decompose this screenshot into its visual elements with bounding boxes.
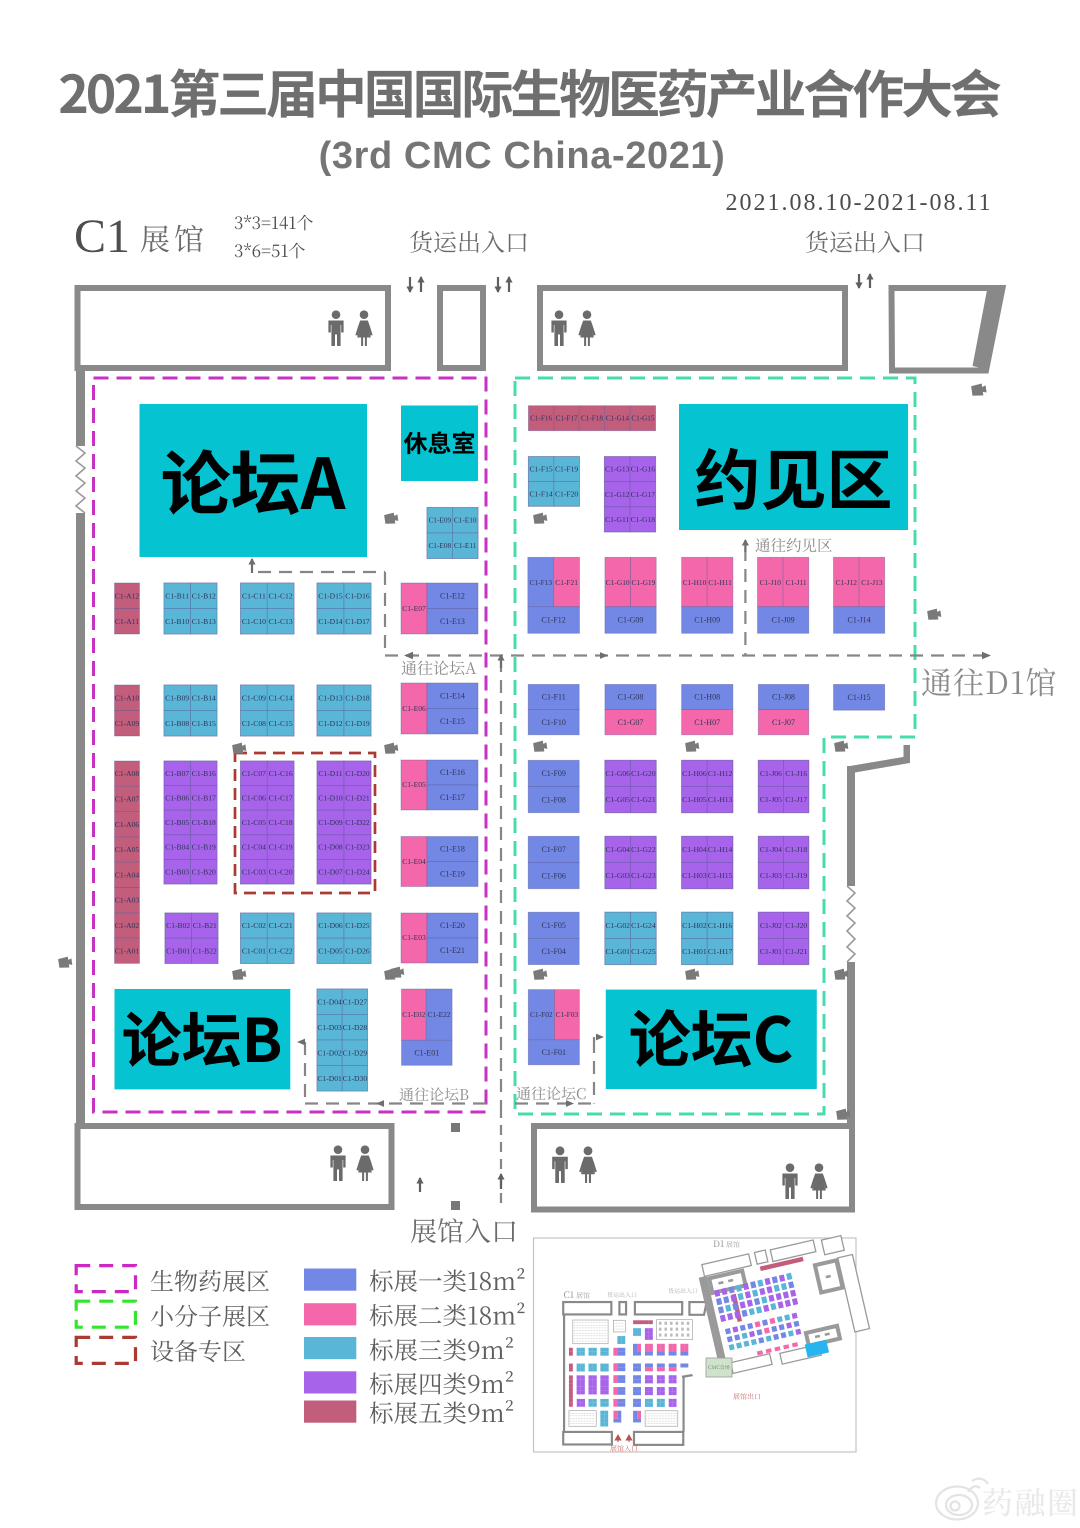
svg-text:C1-C06: C1-C06 [242,794,266,803]
svg-text:C1-F06: C1-F06 [541,871,565,880]
svg-text:C1-D28: C1-D28 [343,1023,368,1032]
svg-text:C1-F01: C1-F01 [542,1048,566,1057]
svg-text:C1-D04: C1-D04 [317,997,342,1006]
svg-text:C1-J12: C1-J12 [836,578,858,587]
svg-text:C1-G22: C1-G22 [631,845,656,854]
svg-text:C1-H01: C1-H01 [682,947,707,956]
svg-text:C1: C1 [74,210,130,263]
svg-text:C1-J16: C1-J16 [785,769,807,778]
svg-text:C1-J01: C1-J01 [760,947,782,956]
svg-text:C1-C16: C1-C16 [269,769,293,778]
svg-text:C1-A01: C1-A01 [115,946,140,955]
svg-text:C1-D24: C1-D24 [345,867,370,876]
svg-text:C1-B08: C1-B08 [165,719,189,728]
svg-text:C1-J04: C1-J04 [760,845,782,854]
svg-text:C1-E04: C1-E04 [402,857,426,866]
svg-text:C1-F17: C1-F17 [556,415,578,423]
svg-text:C1-C04: C1-C04 [242,843,266,852]
svg-text:C1-J13: C1-J13 [861,578,883,587]
svg-text:C1-H16: C1-H16 [708,921,733,930]
svg-text:C1-J15: C1-J15 [848,693,871,702]
svg-text:C1-G17: C1-G17 [631,490,656,499]
svg-text:C1-G03: C1-G03 [605,871,630,880]
svg-text:C1-C05: C1-C05 [242,818,266,827]
svg-text:C1-D21: C1-D21 [345,794,370,803]
svg-text:C1-D27: C1-D27 [343,997,368,1006]
svg-text:C1-H07: C1-H07 [694,718,720,727]
svg-text:C1-C10: C1-C10 [242,617,266,626]
svg-text:C1-J20: C1-J20 [785,921,807,930]
svg-text:C1-A07: C1-A07 [115,795,140,804]
svg-text:C1-E12: C1-E12 [440,592,465,601]
svg-text:C1-C02: C1-C02 [242,921,266,930]
svg-text:C1-E20: C1-E20 [440,921,465,930]
svg-text:C1-J03: C1-J03 [760,871,782,880]
svg-text:C1-D14: C1-D14 [318,617,343,626]
svg-text:C1-J19: C1-J19 [785,871,807,880]
svg-text:C1-G14: C1-G14 [606,415,630,423]
svg-text:C1-A03: C1-A03 [115,896,140,905]
svg-text:C1-H03: C1-H03 [682,871,707,880]
svg-text:C1-G07: C1-G07 [618,718,644,727]
svg-text:C1-B02: C1-B02 [166,921,190,930]
svg-text:C1-G15: C1-G15 [631,415,655,423]
svg-text:C1-F04: C1-F04 [541,947,565,956]
svg-text:C1-A06: C1-A06 [115,820,140,829]
svg-text:C1-D12: C1-D12 [318,719,343,728]
svg-text:C1-F05: C1-F05 [541,921,565,930]
svg-text:C1-B22: C1-B22 [193,947,217,956]
svg-text:C1-C08: C1-C08 [242,719,266,728]
svg-text:C1-G24: C1-G24 [631,921,656,930]
svg-text:C1-E03: C1-E03 [402,933,426,942]
svg-text:C1-D08: C1-D08 [318,843,343,852]
svg-text:C1-E05: C1-E05 [402,780,426,789]
svg-text:C1-B12: C1-B12 [192,591,216,600]
svg-text:C1-G08: C1-G08 [618,693,644,702]
svg-text:C1-F10: C1-F10 [541,718,565,727]
svg-text:C1-C15: C1-C15 [269,719,293,728]
svg-text:C1-D03: C1-D03 [317,1023,342,1032]
svg-text:C1-G21: C1-G21 [631,795,656,804]
svg-text:C1-A05: C1-A05 [115,845,140,854]
svg-text:C1-B10: C1-B10 [165,617,189,626]
svg-text:C1-E18: C1-E18 [440,845,465,854]
svg-text:C1-G04: C1-G04 [605,845,630,854]
svg-text:C1-C07: C1-C07 [242,769,266,778]
svg-text:C1-D26: C1-D26 [345,947,370,956]
svg-text:C1-B06: C1-B06 [165,794,189,803]
svg-text:C1-E02: C1-E02 [402,1010,425,1019]
svg-text:C1-D20: C1-D20 [345,769,370,778]
svg-text:C1-G10: C1-G10 [606,578,630,587]
svg-text:C1-E09: C1-E09 [428,516,451,525]
svg-text:C1-B09: C1-B09 [165,693,189,702]
svg-text:C1-D06: C1-D06 [318,921,343,930]
svg-text:C1-D15: C1-D15 [318,591,343,600]
svg-text:C1-E11: C1-E11 [454,541,477,550]
svg-text:C1-H05: C1-H05 [682,795,707,804]
svg-text:C1-G05: C1-G05 [605,795,630,804]
svg-text:C1-F07: C1-F07 [541,845,565,854]
svg-text:C1-E01: C1-E01 [414,1049,439,1058]
svg-text:C1-D30: C1-D30 [343,1074,368,1083]
svg-text:C1-E06: C1-E06 [402,704,426,713]
svg-text:C1-C19: C1-C19 [269,843,293,852]
svg-text:C1-E14: C1-E14 [440,692,465,701]
svg-text:C1-H11: C1-H11 [708,578,732,587]
svg-text:C1-E19: C1-E19 [440,870,465,879]
svg-text:C1-D13: C1-D13 [318,693,343,702]
svg-text:C1-B05: C1-B05 [165,818,189,827]
svg-text:C1-D17: C1-D17 [345,617,370,626]
svg-text:C1-F14: C1-F14 [529,489,552,498]
svg-text:C1-B11: C1-B11 [165,591,189,600]
svg-text:C1-B19: C1-B19 [192,843,216,852]
svg-text:C1-F11: C1-F11 [542,693,566,702]
svg-text:C1-J05: C1-J05 [760,795,782,804]
svg-text:C1-G23: C1-G23 [631,871,656,880]
svg-text:C1-A12: C1-A12 [115,591,140,600]
svg-text:C1-H17: C1-H17 [708,947,733,956]
svg-text:C1-C20: C1-C20 [269,867,293,876]
svg-text:C1-C17: C1-C17 [269,794,293,803]
svg-text:C1-E10: C1-E10 [454,516,477,525]
svg-text:C1-F08: C1-F08 [541,795,565,804]
svg-text:C1-D07: C1-D07 [318,867,343,876]
svg-text:C1-E21: C1-E21 [440,946,465,955]
svg-text:C1-B21: C1-B21 [193,921,217,930]
svg-text:C1-G19: C1-G19 [631,578,655,587]
svg-text:C1-B20: C1-B20 [192,867,216,876]
svg-text:C1-J10: C1-J10 [760,578,782,587]
svg-text:C1-J07: C1-J07 [772,718,795,727]
svg-text:C1-H09: C1-H09 [694,616,720,625]
svg-text:C1-G20: C1-G20 [631,769,656,778]
svg-text:C1-B15: C1-B15 [192,719,216,728]
svg-text:C1-D02: C1-D02 [317,1048,342,1057]
svg-text:C1-F19: C1-F19 [555,465,578,474]
svg-text:C1-B01: C1-B01 [166,947,190,956]
svg-text:C1-B18: C1-B18 [192,818,216,827]
svg-text:C1-D22: C1-D22 [345,818,370,827]
svg-text:C1-H13: C1-H13 [708,795,733,804]
svg-text:C1-C18: C1-C18 [269,818,293,827]
svg-text:C1-D25: C1-D25 [345,921,370,930]
svg-text:C1-G06: C1-G06 [605,769,630,778]
svg-text:C1-C11: C1-C11 [242,591,266,600]
svg-text:C1-E17: C1-E17 [440,793,465,802]
svg-text:C1-C01: C1-C01 [242,947,266,956]
svg-text:C1-H12: C1-H12 [708,769,733,778]
svg-text:C1-F18: C1-F18 [581,415,603,423]
svg-text:C1-A08: C1-A08 [115,769,140,778]
svg-text:C1-J21: C1-J21 [785,947,807,956]
svg-text:C1-G25: C1-G25 [631,947,656,956]
svg-text:C1-F02: C1-F02 [530,1010,553,1019]
svg-text:C1-C22: C1-C22 [269,947,293,956]
svg-text:C1-C14: C1-C14 [269,693,293,702]
svg-text:C1-E08: C1-E08 [428,541,451,550]
svg-text:C1-F12: C1-F12 [541,616,565,625]
svg-text:C1-A11: C1-A11 [115,617,139,626]
svg-text:C1-D23: C1-D23 [345,843,370,852]
svg-text:C1-J02: C1-J02 [760,921,782,930]
svg-text:C1-B16: C1-B16 [192,769,216,778]
svg-text:C1-B03: C1-B03 [165,867,189,876]
svg-text:C1-E15: C1-E15 [440,717,465,726]
svg-text:C1-G11: C1-G11 [605,515,629,524]
svg-text:C1-D05: C1-D05 [318,947,343,956]
svg-text:C1-D11: C1-D11 [318,769,342,778]
svg-text:C1-H08: C1-H08 [694,693,720,702]
svg-text:C1-G12: C1-G12 [605,490,630,499]
svg-text:C1-A04: C1-A04 [115,870,140,879]
svg-text:C1-H10: C1-H10 [682,578,706,587]
svg-text:C1-A10: C1-A10 [115,693,140,702]
svg-text:C1-F16: C1-F16 [530,415,552,423]
svg-text:C1-H02: C1-H02 [682,921,707,930]
svg-text:C1-F13: C1-F13 [530,578,553,587]
svg-text:C1-B13: C1-B13 [192,617,216,626]
svg-text:C1-A02: C1-A02 [115,921,140,930]
svg-text:C1-D19: C1-D19 [345,719,370,728]
svg-text:C1-H15: C1-H15 [708,871,733,880]
svg-text:C1-C03: C1-C03 [242,867,266,876]
svg-text:C1-G09: C1-G09 [618,616,644,625]
svg-text:C1-D16: C1-D16 [345,591,370,600]
svg-text:C1-J09: C1-J09 [772,616,795,625]
svg-text:C1-J18: C1-J18 [785,845,807,854]
svg-text:C1-H04: C1-H04 [682,845,707,854]
svg-text:2021.08.10-2021-08.11: 2021.08.10-2021-08.11 [725,190,992,216]
svg-text:C1-G02: C1-G02 [605,921,630,930]
svg-text:C1-E22: C1-E22 [428,1010,451,1019]
svg-text:C1-F03: C1-F03 [556,1010,579,1019]
svg-text:C1-F20: C1-F20 [555,489,578,498]
svg-text:C1-J06: C1-J06 [760,769,782,778]
svg-text:C1-B04: C1-B04 [165,843,189,852]
svg-text:C1-G18: C1-G18 [631,515,656,524]
svg-text:C1-C09: C1-C09 [242,693,266,702]
svg-text:C1-D10: C1-D10 [318,794,343,803]
svg-text:C1-G01: C1-G01 [605,947,630,956]
svg-text:C1-E13: C1-E13 [440,617,465,626]
svg-text:C1-F21: C1-F21 [555,578,578,587]
svg-text:C1-C21: C1-C21 [269,921,293,930]
svg-text:C1-H14: C1-H14 [708,845,733,854]
svg-text:C1-F09: C1-F09 [541,769,565,778]
svg-text:C1-J17: C1-J17 [785,795,807,804]
svg-text:C1-B07: C1-B07 [165,769,189,778]
svg-text:C1-B17: C1-B17 [192,794,216,803]
svg-text:C1-A09: C1-A09 [115,719,140,728]
svg-text:C1-B14: C1-B14 [192,693,216,702]
svg-text:(3rd CMC China-2021): (3rd CMC China-2021) [319,135,726,177]
svg-text:C1-J14: C1-J14 [848,616,871,625]
svg-text:C1-D09: C1-D09 [318,818,343,827]
svg-text:C1-G16: C1-G16 [631,465,656,474]
svg-text:C1-H06: C1-H06 [682,769,707,778]
svg-text:C1-D01: C1-D01 [317,1074,342,1083]
svg-text:C1-G13: C1-G13 [605,465,630,474]
svg-text:C1-D18: C1-D18 [345,693,370,702]
svg-text:C1-F15: C1-F15 [529,465,552,474]
svg-text:C1-D29: C1-D29 [343,1048,368,1057]
svg-text:C1-C13: C1-C13 [269,617,293,626]
svg-text:C1-J08: C1-J08 [772,693,795,702]
svg-text:C1-E07: C1-E07 [402,604,426,613]
svg-text:C1-E16: C1-E16 [440,768,465,777]
svg-text:C1-C12: C1-C12 [269,591,293,600]
svg-text:C1-J11: C1-J11 [785,578,806,587]
